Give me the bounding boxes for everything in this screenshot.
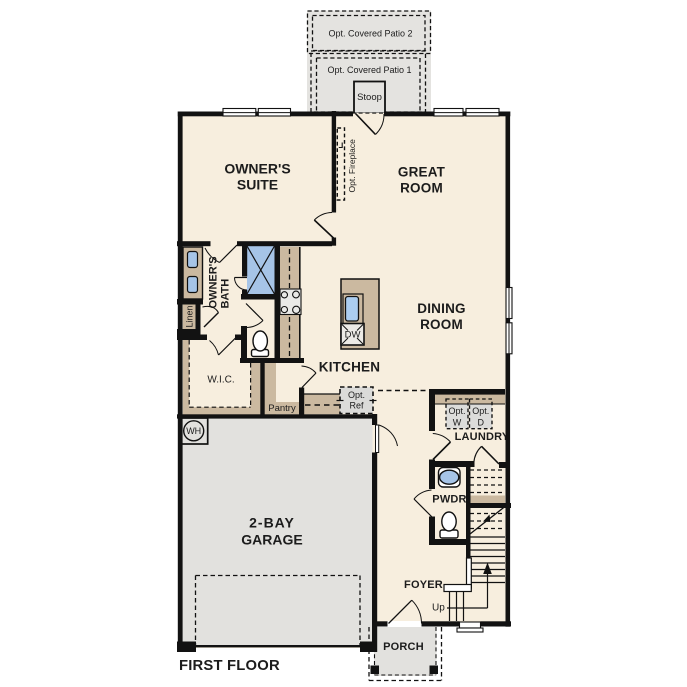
svg-text:SUITE: SUITE <box>237 177 278 193</box>
svg-text:W.I.C.: W.I.C. <box>207 375 234 386</box>
svg-text:2-BAY: 2-BAY <box>249 515 295 531</box>
svg-text:FIRST FLOOR: FIRST FLOOR <box>179 658 280 674</box>
svg-text:GARAGE: GARAGE <box>241 532 302 548</box>
svg-text:LAUNDRY: LAUNDRY <box>455 431 510 443</box>
svg-text:DINING: DINING <box>417 301 465 316</box>
svg-text:OWNER'S: OWNER'S <box>224 161 290 177</box>
svg-text:GREAT: GREAT <box>398 165 446 180</box>
svg-text:Up: Up <box>432 603 445 614</box>
svg-text:Opt. Covered Patio 1: Opt. Covered Patio 1 <box>327 65 411 75</box>
svg-text:WH: WH <box>186 426 201 436</box>
svg-text:ROOM: ROOM <box>400 181 443 196</box>
svg-text:ROOM: ROOM <box>420 317 463 332</box>
svg-text:D: D <box>477 418 484 428</box>
svg-text:Pantry: Pantry <box>268 403 296 414</box>
svg-text:Linen: Linen <box>185 305 195 327</box>
svg-text:Opt. Covered Patio 2: Opt. Covered Patio 2 <box>328 29 412 39</box>
svg-text:DW: DW <box>345 330 361 341</box>
svg-text:Opt.: Opt. <box>448 406 465 416</box>
svg-text:PWDR: PWDR <box>432 494 466 506</box>
svg-text:W: W <box>453 418 462 428</box>
svg-text:OWNER'S: OWNER'S <box>208 256 220 308</box>
svg-text:Ref: Ref <box>349 401 364 411</box>
svg-text:BATH: BATH <box>220 279 232 309</box>
svg-text:KITCHEN: KITCHEN <box>319 360 380 375</box>
svg-text:Opt. Fireplace: Opt. Fireplace <box>347 139 357 193</box>
svg-text:Opt.: Opt. <box>472 406 489 416</box>
svg-text:Stoop: Stoop <box>357 92 382 103</box>
svg-text:PORCH: PORCH <box>383 641 424 653</box>
svg-text:FOYER: FOYER <box>404 579 443 591</box>
svg-text:Opt.: Opt. <box>348 390 365 400</box>
